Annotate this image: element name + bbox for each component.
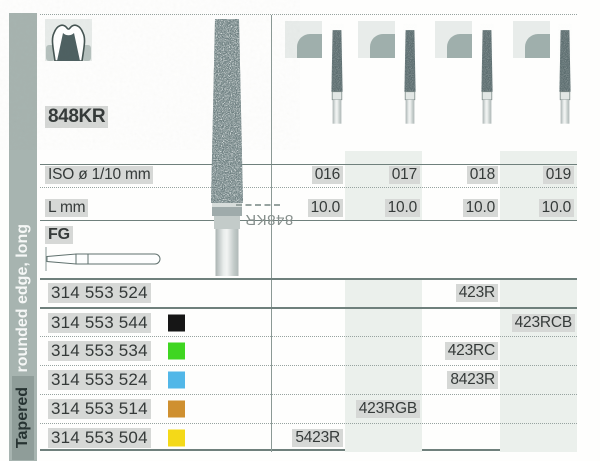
length-value-018: 10.0 [463, 199, 498, 217]
bur-thumbnail [557, 19, 573, 134]
length-value-016: 10.0 [308, 199, 343, 217]
grit-blue-square [168, 372, 185, 389]
product-row: 314 553 514 423RGB [40, 394, 577, 423]
prepared-molar-icon [45, 19, 92, 61]
size-column-header-016 [272, 15, 345, 150]
bur-code: 423RC [445, 342, 498, 360]
iso-value-018: 018 [467, 166, 498, 184]
order-number: 314 553 524 [48, 283, 151, 303]
grit-orange-square [168, 401, 185, 418]
bur-code: 423R [456, 284, 498, 302]
row-line [40, 164, 577, 165]
iso-diameter-label: ISO ø 1/10 mm [45, 166, 153, 184]
fg-shank-outline-drawing [44, 246, 164, 272]
grit-yellow-square [168, 430, 185, 447]
product-row: 314 553 524 8423R [40, 365, 577, 394]
diamond-bur-photo [207, 17, 247, 277]
bur-thumbnail [402, 19, 418, 134]
category-box: Tapered [12, 376, 34, 460]
rounded-edge-taper-icon [285, 21, 322, 58]
length-label: L mm [45, 199, 88, 217]
grit-green-square [168, 343, 185, 360]
order-number: 314 553 544 [48, 313, 151, 333]
order-number: 314 553 504 [48, 428, 151, 448]
dash-artifact [236, 204, 280, 206]
iso-value-017: 017 [389, 166, 420, 184]
size-column-header-018 [422, 15, 500, 150]
size-column-header-017 [345, 15, 422, 150]
bur-code: 5423R [292, 429, 343, 447]
rounded-edge-taper-icon [435, 21, 472, 58]
product-row: 314 553 544 423RCB [40, 307, 577, 336]
product-row: 314 553 504 5423R [40, 423, 577, 452]
bur-spec-table: 848KR 848KR [40, 14, 577, 451]
category-label: Tapered [14, 387, 32, 448]
rounded-edge-taper-icon [513, 21, 550, 58]
rounded-edge-taper-icon [358, 21, 395, 58]
product-row: 314 553 524 423R [40, 278, 577, 307]
product-row: 314 553 534 423RC [40, 336, 577, 365]
bur-thumbnail [479, 19, 495, 134]
iso-value-019: 019 [543, 166, 574, 184]
iso-value-016: 016 [312, 166, 343, 184]
order-number: 314 553 514 [48, 399, 151, 419]
shape-group-label: rounded edge, long [14, 224, 32, 372]
bur-shank-watermark: 848KR [238, 211, 300, 228]
size-column-header-019 [500, 15, 577, 150]
row-line [40, 187, 577, 188]
row-line [40, 220, 577, 221]
length-value-017: 10.0 [385, 199, 420, 217]
bur-thumbnail [329, 19, 345, 134]
grit-black-square [168, 314, 185, 331]
sidebar-category-bar: rounded edge, long Tapered [9, 13, 37, 461]
order-number: 314 553 524 [48, 370, 151, 390]
order-number: 314 553 534 [48, 341, 151, 361]
catalog-page: { "sidebar": { "category_label": "Tapere… [0, 0, 600, 461]
bur-code: 423RGB [356, 400, 420, 418]
product-rows: 314 553 524 423R 314 553 544 423RCB 314 … [40, 278, 577, 452]
bur-code: 8423R [447, 371, 498, 389]
figure-code: 848KR [45, 106, 108, 128]
bur-code: 423RCB [512, 314, 575, 332]
shank-type-label: FG [45, 226, 73, 244]
length-value-019: 10.0 [539, 199, 574, 217]
